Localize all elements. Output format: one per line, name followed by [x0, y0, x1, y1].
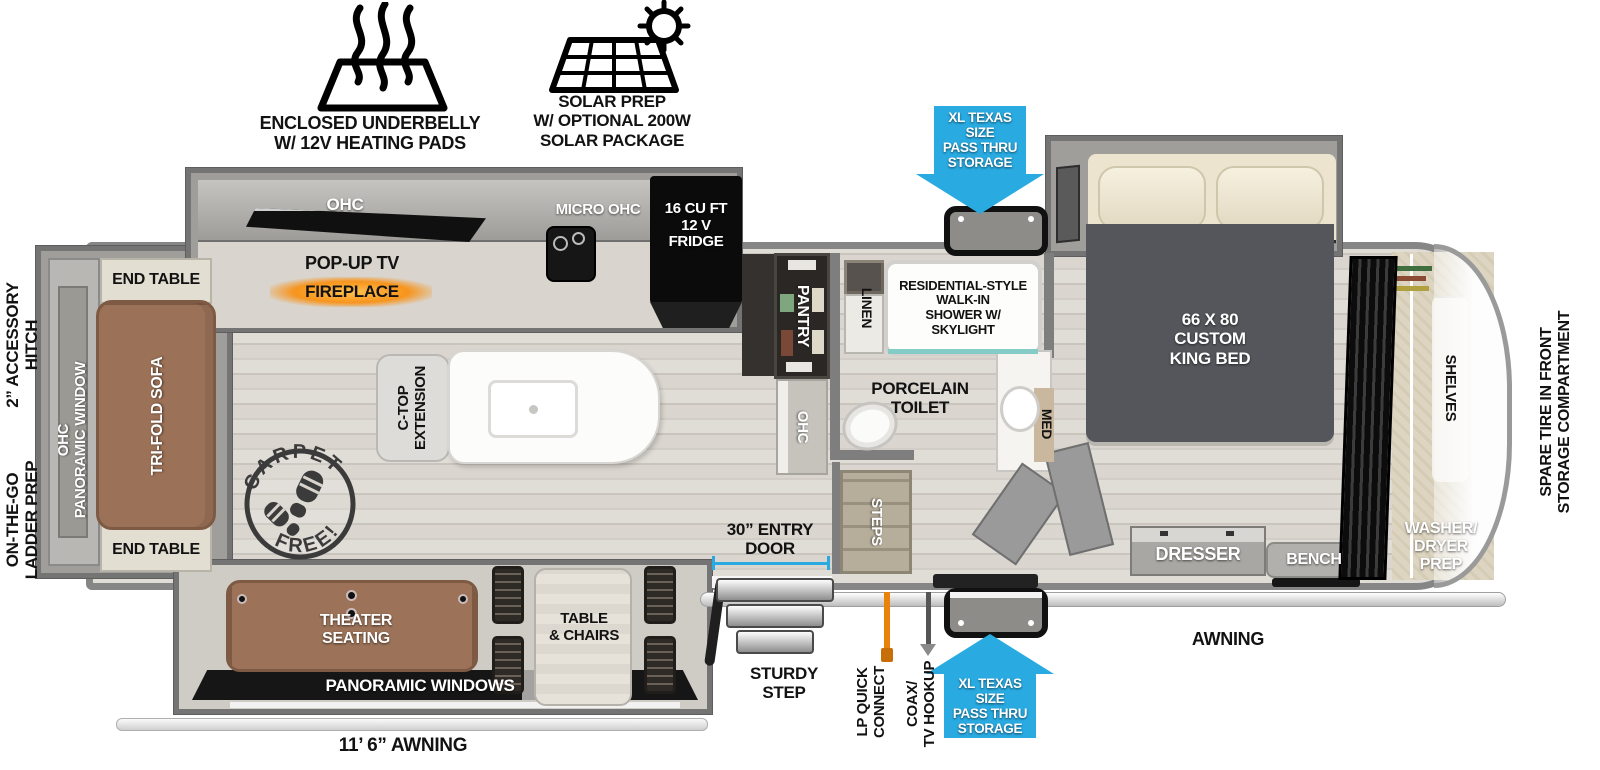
dresser-label: DRESSER	[1132, 540, 1264, 568]
dinette-chair	[644, 636, 676, 694]
counter-dark	[742, 254, 776, 376]
bench-label: BENCH	[1268, 548, 1360, 572]
solar-prep-label: SOLAR PREP W/ OPTIONAL 200W SOLAR PACKAG…	[508, 92, 716, 150]
sturdy-step-tread	[726, 604, 824, 628]
ctop-extension-label: C-TOP EXTENSION	[393, 343, 433, 473]
storage-rivet	[1028, 620, 1034, 626]
pass-thru-bottom-arrowhead	[926, 634, 1054, 674]
entry-door-dimension-tick	[712, 556, 715, 570]
shower-label: RESIDENTIAL-STYLE WALK-IN SHOWER W/ SKYL…	[886, 266, 1040, 350]
ladder-prep-label: ON-THE-GO LADDER PREP	[2, 415, 42, 625]
dinette-chair	[492, 566, 524, 624]
pass-thru-bottom-arrow: XL TEXAS SIZE PASS THRU STORAGE	[944, 674, 1036, 738]
sink-drain	[529, 405, 538, 414]
underbelly-label: ENCLOSED UNDERBELLY W/ 12V HEATING PADS	[242, 112, 498, 154]
bath-wall	[1044, 253, 1054, 358]
floorplan-diagram: ENCLOSED UNDERBELLY W/ 12V HEATING PADS …	[0, 0, 1600, 770]
cupholder	[458, 594, 468, 604]
cupholder	[346, 590, 357, 601]
linen-label: LINEN	[846, 258, 886, 358]
tri-fold-sofa-label: TRI-FOLD SOFA	[138, 341, 178, 491]
lp-quick-connect-label: LP QUICK CONNECT	[850, 640, 894, 764]
rear-window-label: OHC PANORAMIC WINDOW	[52, 335, 94, 545]
dresser-handle	[1226, 531, 1234, 536]
storage-strip-bottom	[950, 592, 1042, 598]
shelves-label: SHELVES	[1430, 328, 1470, 448]
theater-seating-label: THEATER SEATING	[288, 606, 424, 654]
bath-wall	[830, 253, 840, 458]
storage-slot-bottom	[933, 574, 1038, 588]
hanging-clothes	[1396, 266, 1432, 271]
pop-up-tv-label: POP-UP TV	[262, 248, 442, 278]
awning-size-label: 11’ 6” AWNING	[298, 732, 508, 760]
pass-thru-top-arrowhead	[916, 174, 1044, 214]
spare-tire-label: SPARE TIRE IN FRONT STORAGE COMPARTMENT	[1536, 292, 1576, 532]
storage-rivet	[958, 620, 964, 626]
table-chairs-label: TABLE & CHAIRS	[538, 604, 630, 652]
sturdy-step-tread	[736, 630, 814, 654]
panoramic-windows-label: PANORAMIC WINDOWS	[250, 672, 590, 700]
bedroom-window	[1056, 165, 1080, 244]
refrigerator-base	[650, 302, 742, 328]
cooktop-burner	[553, 236, 568, 251]
ohc-counter-label: OHC	[782, 377, 822, 477]
pillow	[1216, 166, 1324, 230]
end-table-bottom-label: END TABLE	[100, 532, 212, 568]
cupholder	[237, 594, 247, 604]
ohc-label: OHC	[300, 190, 390, 220]
dresser-handle	[1160, 531, 1168, 536]
storage-rivet	[958, 216, 964, 222]
coax-tv-label: COAX/ TV HOOKUP	[900, 642, 944, 766]
pass-thru-top-arrow: XL TEXAS SIZE PASS THRU STORAGE	[934, 106, 1026, 174]
bath-wall	[830, 450, 914, 460]
cooktop-burner	[572, 232, 585, 245]
heating-pads-icon	[300, 2, 465, 114]
fireplace-label: FIREPLACE	[272, 280, 432, 304]
pillow	[1098, 166, 1206, 230]
entry-door-label: 30” ENTRY DOOR	[696, 516, 844, 562]
carpet-free-stamp: CARPET FREE!	[226, 430, 373, 577]
dinette-chair	[644, 566, 676, 624]
fridge-label: 16 CU FT 12 V FRIDGE	[652, 188, 740, 264]
hanging-clothes	[1396, 276, 1426, 281]
sturdy-step-tread	[716, 578, 834, 602]
king-bed-label: 66 X 80 CUSTOM KING BED	[1126, 300, 1294, 378]
washer-dryer-prep-label: WASHER/ DRYER PREP	[1396, 514, 1486, 580]
steps-label: STEPS	[856, 462, 896, 582]
toilet-label: PORCELAIN TOILET	[846, 376, 994, 420]
entry-door-dimension-tick	[827, 556, 830, 570]
cooktop	[546, 226, 596, 282]
hanging-clothes	[1396, 286, 1429, 291]
entry-door-dimension-line	[712, 562, 830, 565]
awning-label: AWNING	[1180, 626, 1276, 652]
med-label: MED	[1026, 374, 1066, 474]
solar-prep-icon	[540, 0, 700, 94]
pantry-label: PANTRY	[782, 256, 822, 376]
sturdy-step-label: STURDY STEP	[722, 660, 846, 706]
storage-rivet	[1028, 216, 1034, 222]
awning-bar-bottom	[116, 718, 708, 731]
end-table-top-label: END TABLE	[100, 262, 212, 298]
